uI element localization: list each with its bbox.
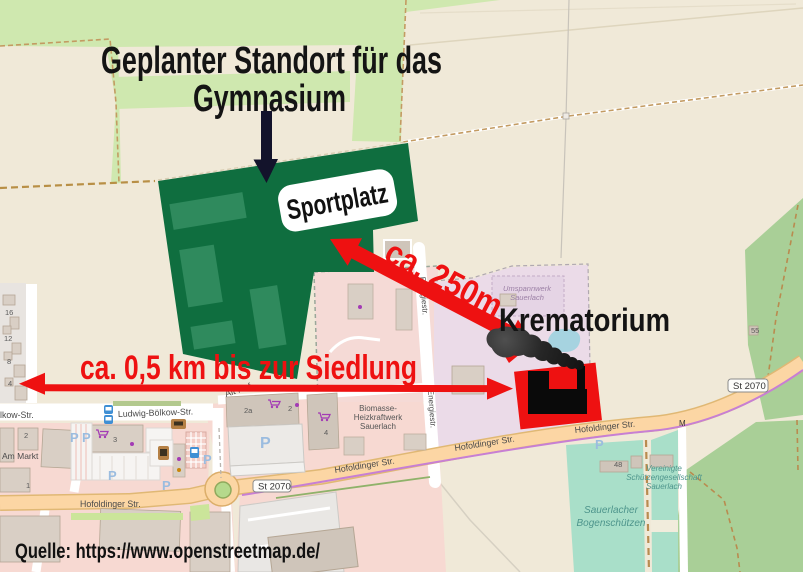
svg-text:P: P xyxy=(260,435,271,452)
svg-text:Sauerlach: Sauerlach xyxy=(510,293,544,302)
svg-text:Krematorium: Krematorium xyxy=(499,302,670,338)
svg-text:48: 48 xyxy=(614,460,622,469)
svg-text:Geplanter Standort für das: Geplanter Standort für das xyxy=(101,40,442,82)
svg-text:1: 1 xyxy=(26,481,30,490)
svg-text:P: P xyxy=(203,452,212,467)
svg-text:Hofoldinger Str.: Hofoldinger Str. xyxy=(80,499,141,509)
svg-text:P: P xyxy=(162,478,171,493)
svg-text:Umspannwerk: Umspannwerk xyxy=(503,284,552,293)
svg-text:2: 2 xyxy=(24,431,28,440)
svg-text:Heizkraftwerk: Heizkraftwerk xyxy=(354,413,403,422)
svg-text:P: P xyxy=(82,430,91,445)
svg-text:4: 4 xyxy=(8,379,12,388)
svg-text:Quelle: https://www.openstreet: Quelle: https://www.openstreetmap.de/ xyxy=(15,540,320,563)
svg-text:8: 8 xyxy=(7,357,11,366)
svg-text:lkow-Str.: lkow-Str. xyxy=(0,410,34,420)
svg-text:16: 16 xyxy=(5,308,13,317)
svg-text:P: P xyxy=(70,430,79,445)
svg-text:Sauerlach: Sauerlach xyxy=(360,422,396,431)
svg-text:2a: 2a xyxy=(244,406,253,415)
svg-text:Bogenschützen: Bogenschützen xyxy=(577,518,646,529)
svg-text:M: M xyxy=(679,419,686,428)
svg-text:St 2070: St 2070 xyxy=(733,381,766,392)
svg-text:Schützengesellschaft: Schützengesellschaft xyxy=(626,473,702,482)
svg-text:Gymnasium: Gymnasium xyxy=(193,78,346,120)
svg-text:12: 12 xyxy=(4,334,12,343)
svg-text:P: P xyxy=(108,468,117,483)
svg-text:4: 4 xyxy=(324,428,328,437)
svg-text:2: 2 xyxy=(288,404,292,413)
svg-text:55: 55 xyxy=(751,326,759,335)
svg-text:ca. 0,5 km bis zur Siedlung: ca. 0,5 km bis zur Siedlung xyxy=(80,349,417,387)
svg-text:Vereinigte: Vereinigte xyxy=(646,464,682,473)
svg-text:Sauerlacher: Sauerlacher xyxy=(584,505,639,516)
svg-text:St 2070: St 2070 xyxy=(258,482,291,493)
svg-text:P: P xyxy=(595,437,604,452)
svg-text:Sauerlach: Sauerlach xyxy=(646,482,683,491)
svg-text:Am Markt: Am Markt xyxy=(2,451,39,461)
svg-text:3: 3 xyxy=(113,435,117,444)
svg-text:Biomasse-: Biomasse- xyxy=(359,404,397,413)
